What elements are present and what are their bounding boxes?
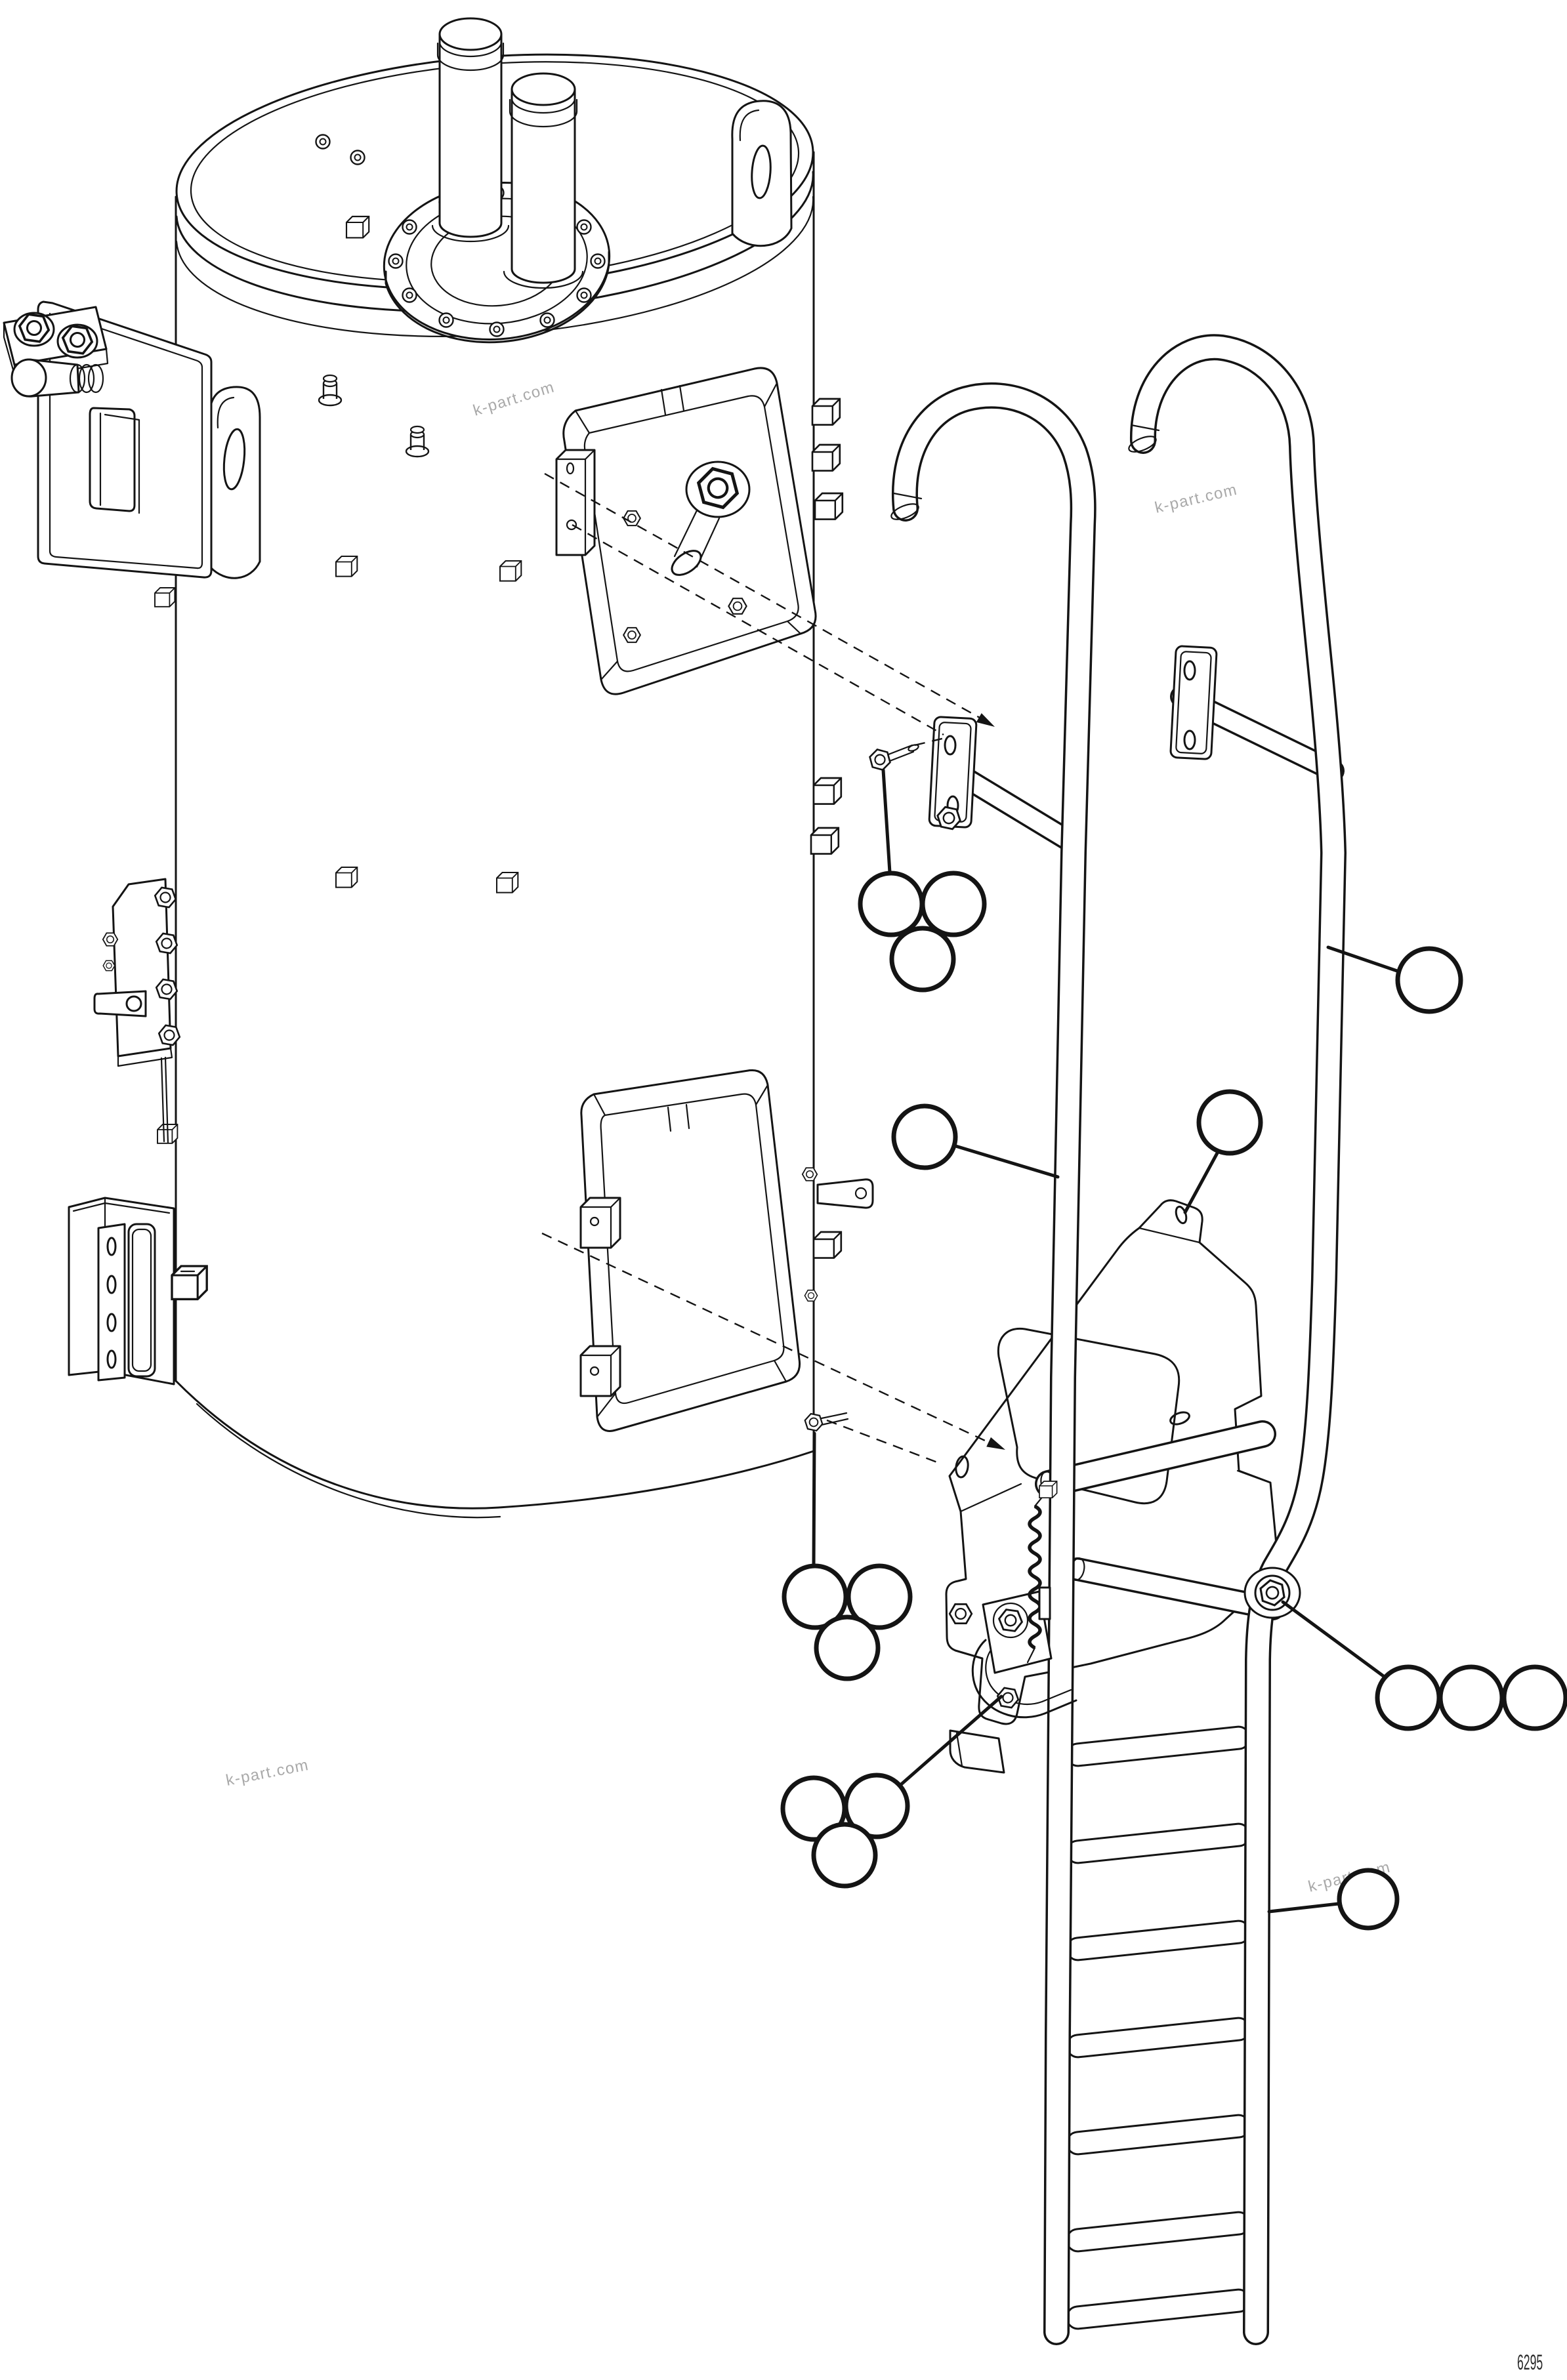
- callout-balloon-B: [894, 1106, 955, 1168]
- callout-balloon-C: [1398, 949, 1461, 1012]
- callout-balloon-A2: [923, 873, 984, 935]
- callout-balloon-H3: [1504, 1667, 1566, 1729]
- callout-balloon-D: [1199, 1092, 1261, 1153]
- callout-balloon-G: [1339, 1870, 1397, 1928]
- callout-balloon-H2: [1440, 1667, 1502, 1729]
- parts-diagram-canvas: k-part.comk-part.comk-part.comk-part.com: [0, 0, 1567, 2380]
- callout-balloon-F3: [814, 1824, 875, 1886]
- callout-balloon-A3: [892, 928, 953, 990]
- callout-balloon-A1: [860, 873, 922, 935]
- callout-leader-line: [814, 1433, 814, 1566]
- parts-diagram: k-part.comk-part.comk-part.comk-part.com: [0, 0, 1567, 2380]
- callout-balloon-E3: [816, 1617, 878, 1679]
- sheet-code: 6295: [1517, 2352, 1543, 2375]
- callout-balloon-H1: [1377, 1667, 1439, 1729]
